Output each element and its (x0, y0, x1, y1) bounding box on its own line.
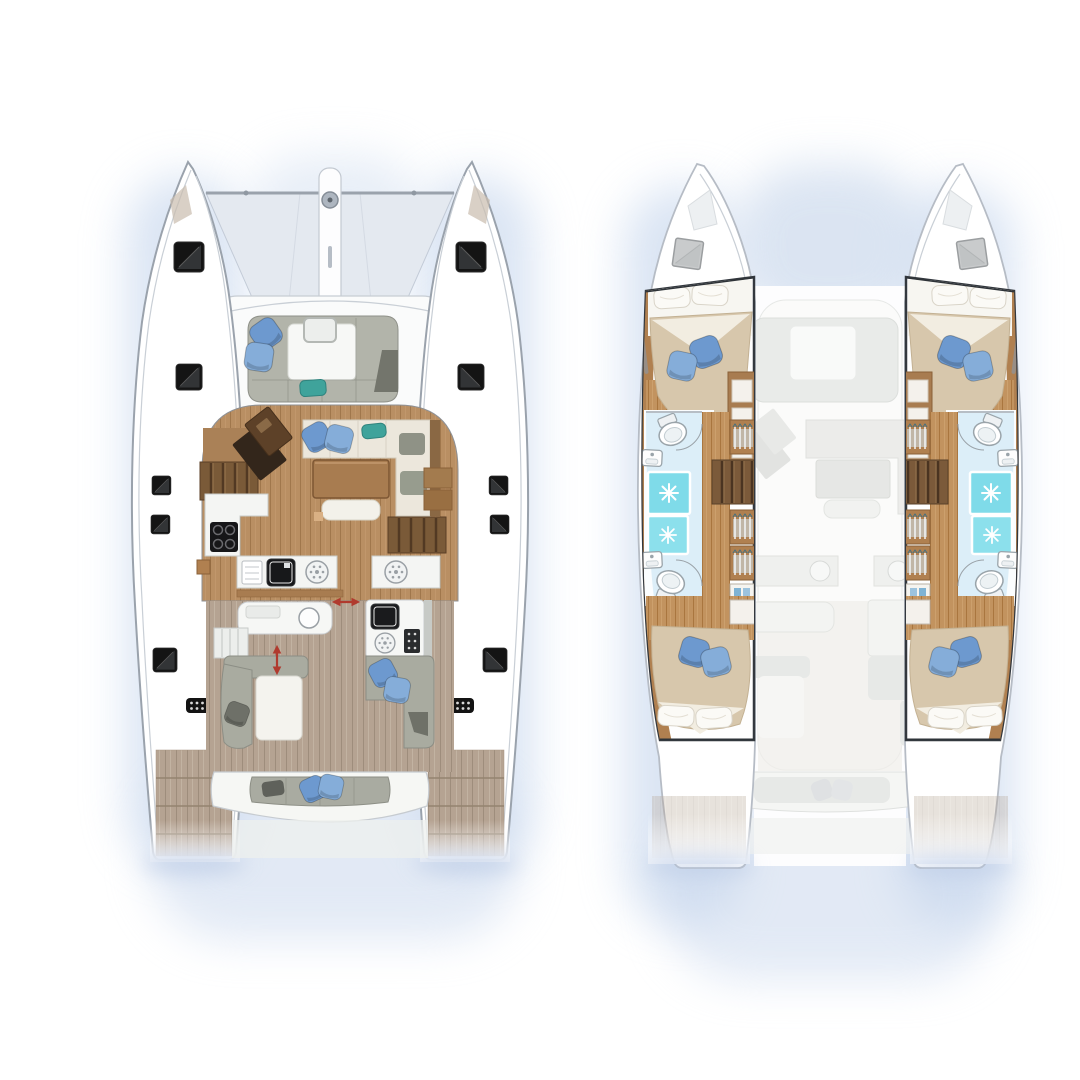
white-pillow (658, 705, 695, 727)
sink-icon (642, 449, 663, 466)
round-burner (375, 633, 395, 653)
table-leg (314, 512, 323, 521)
aft-cabin (646, 596, 758, 734)
table-bench (322, 500, 380, 520)
wardrobe-hanging-locker (730, 510, 756, 544)
blue-pillow (382, 675, 411, 704)
bedside-cabinet (730, 600, 756, 624)
deck-plan-view (132, 162, 528, 874)
blue-pillow (665, 349, 698, 382)
aft-cockpit (206, 599, 454, 773)
companionway-stairs (712, 460, 758, 504)
shower-drain-icon (660, 484, 678, 502)
seat-cushion (399, 433, 425, 455)
cockpit-sink (299, 608, 319, 628)
teal-pillow (361, 423, 386, 439)
deck-hatch (153, 648, 177, 672)
dark-pillow (261, 780, 285, 798)
companionway-steps-starboard (388, 517, 446, 553)
deck-hatch (176, 364, 202, 390)
sunpad-table (256, 676, 302, 740)
deck-hatch (174, 242, 204, 272)
side-locker (424, 490, 452, 510)
locker-small (197, 560, 210, 574)
side-locker (424, 468, 452, 488)
white-pillow (692, 284, 729, 306)
deck-hatch (151, 515, 170, 534)
seat-cushion (400, 471, 427, 495)
wardrobe-hanging-locker (730, 546, 756, 580)
blue-pillow (317, 773, 345, 801)
deck-hatch (152, 476, 171, 495)
shower-drain-icon (660, 527, 676, 543)
sink-icon (642, 551, 663, 568)
white-pillow (695, 707, 732, 729)
forward-cockpit-lounge (243, 315, 398, 402)
teal-pillow (299, 379, 326, 397)
outdoor-galley (366, 600, 432, 658)
salon (197, 405, 458, 601)
round-hob (385, 561, 407, 583)
bathroom (642, 410, 730, 606)
wardrobe-hanging-locker (730, 420, 756, 454)
side-steps (214, 628, 248, 658)
round-hob (306, 561, 328, 583)
bow-locker-hatch (672, 238, 704, 270)
dining-table (313, 460, 389, 498)
forward-hatch-seat (304, 318, 336, 342)
floor-plan-canvas (0, 0, 1080, 1080)
control-panel (404, 629, 420, 653)
threshold (237, 590, 343, 597)
aft-platform (232, 820, 428, 858)
cockpit-lounge-port (221, 656, 308, 748)
blue-pillow (243, 341, 275, 373)
hall-floor (702, 412, 730, 600)
